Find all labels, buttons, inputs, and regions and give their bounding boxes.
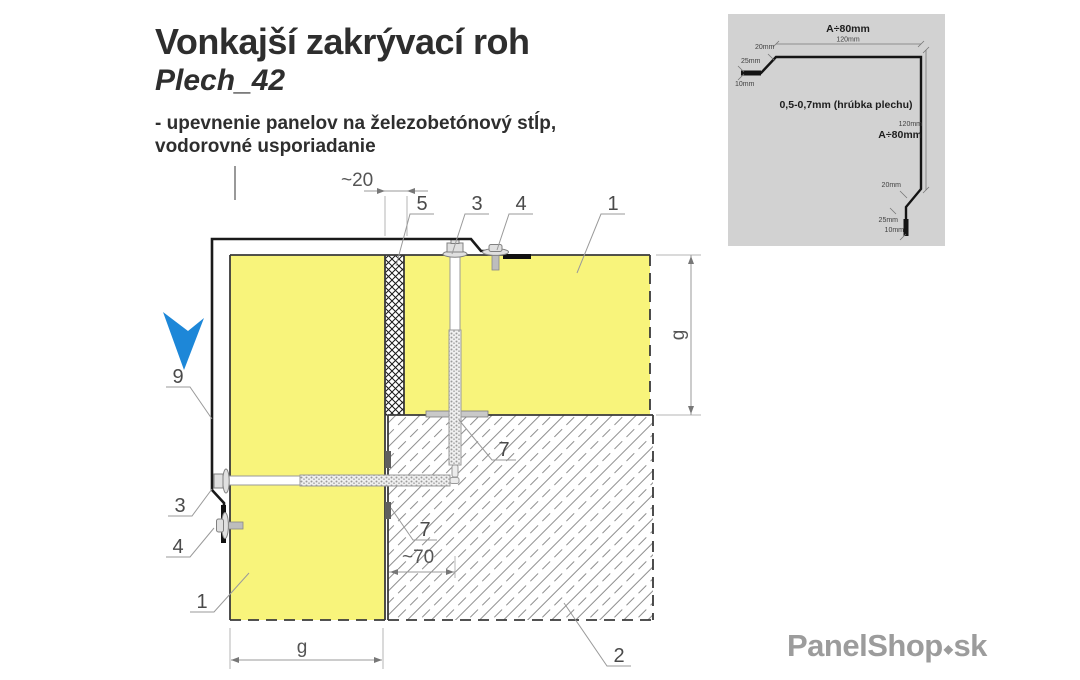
sandwich-panel-left bbox=[230, 255, 385, 620]
callout-1-top: 1 bbox=[607, 193, 618, 215]
inset-top-dim: 120mm bbox=[836, 37, 860, 44]
inset-left-bend: 20mm bbox=[755, 44, 775, 51]
callout-screw-left: 3 bbox=[168, 489, 212, 517]
callout-rivet-top: 4 bbox=[497, 193, 533, 250]
callout-rivet-left: 4 bbox=[166, 528, 214, 558]
panelshop-logo: PanelShop◆sk bbox=[787, 628, 987, 664]
callout-3-left: 3 bbox=[174, 495, 185, 517]
dim-joint-width: ~20 bbox=[341, 170, 428, 236]
inset-thickness-note: 0,5-0,7mm (hrúbka plechu) bbox=[779, 99, 912, 111]
page-title: Vonkajší zakrývací roh bbox=[155, 22, 556, 62]
panelshop-diamond-icon: ◆ bbox=[944, 642, 953, 656]
inset-right-hem: 25mm bbox=[879, 217, 899, 224]
inset-right-dim: 120mm bbox=[899, 121, 923, 128]
callout-3-top: 3 bbox=[471, 193, 482, 215]
header: Vonkajší zakrývací roh Plech_42 - upevne… bbox=[155, 22, 556, 158]
flashing-profile-inset: A÷80mm 120mm 120mm A÷80mm 0,5-0,7mm (hrú… bbox=[728, 14, 945, 246]
corner-detail-drawing: ~20 g g ~70 bbox=[150, 160, 730, 680]
sandwich-panel-top bbox=[404, 255, 650, 415]
description-line-2: vodorovné usporiadanie bbox=[155, 135, 556, 158]
callout-5: 5 bbox=[416, 193, 427, 215]
dim-label-joint-width: ~20 bbox=[341, 170, 373, 191]
model-name: Plech_42 bbox=[155, 64, 556, 98]
inset-right-fold: 10mm bbox=[885, 227, 905, 234]
expansion-clip-upper bbox=[385, 451, 391, 468]
concrete-column bbox=[388, 415, 653, 620]
inset-top-label: A÷80mm bbox=[826, 23, 870, 35]
description-line-1: - upevnenie panelov na železobetónový st… bbox=[155, 112, 556, 135]
dim-label-g-right: g bbox=[668, 330, 689, 341]
dim-panel-thickness-right: g bbox=[656, 255, 701, 415]
blue-direction-arrow bbox=[163, 312, 204, 370]
callout-7-top: 7 bbox=[498, 439, 509, 461]
brand-name: PanelShop bbox=[787, 628, 943, 663]
callout-7-left: 7 bbox=[419, 519, 430, 541]
expansion-clip-lower bbox=[385, 502, 391, 519]
callout-flashing: 9 bbox=[166, 366, 212, 419]
inset-right-label: A÷80mm bbox=[878, 129, 922, 141]
dim-label-embedment: ~70 bbox=[402, 547, 434, 568]
brand-tld: sk bbox=[953, 628, 986, 663]
flashing-hem-top bbox=[503, 254, 531, 259]
inset-left-fold: 10mm bbox=[735, 81, 755, 88]
callout-2: 2 bbox=[613, 645, 624, 667]
inset-left-hem: 25mm bbox=[741, 58, 761, 65]
callout-9: 9 bbox=[172, 366, 183, 388]
joint-seal-crosshatch bbox=[385, 255, 404, 415]
dim-label-g-bottom: g bbox=[297, 637, 308, 658]
dim-panel-thickness-bottom: g bbox=[230, 628, 383, 669]
callout-1-bottom: 1 bbox=[196, 591, 207, 613]
callout-4-left: 4 bbox=[172, 536, 183, 558]
inset-right-bend: 20mm bbox=[882, 182, 902, 189]
callout-4-top: 4 bbox=[515, 193, 526, 215]
page: Vonkajší zakrývací roh Plech_42 - upevne… bbox=[0, 0, 1080, 680]
